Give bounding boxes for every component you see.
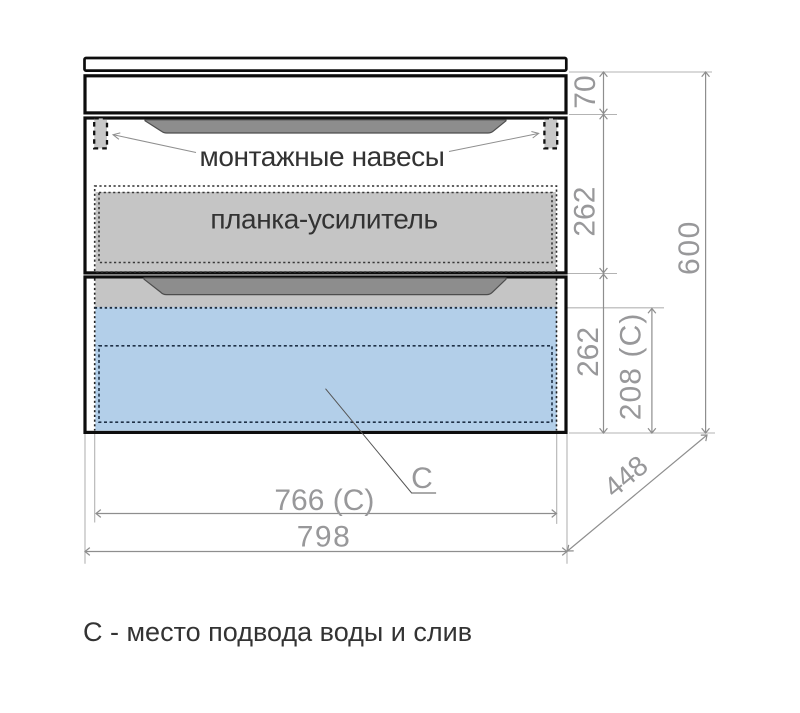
svg-text:планка-усилитель: планка-усилитель [210, 204, 437, 235]
svg-text:С: С [411, 462, 433, 495]
svg-text:С - место подвода воды и слив: С - место подвода воды и слив [83, 617, 472, 647]
svg-text:798: 798 [297, 521, 352, 554]
svg-text:766 (С): 766 (С) [274, 484, 374, 517]
svg-text:262: 262 [572, 327, 605, 377]
svg-text:208 (С): 208 (С) [615, 313, 648, 421]
svg-text:монтажные навесы: монтажные навесы [200, 141, 445, 172]
svg-text:600: 600 [673, 220, 706, 275]
svg-text:70: 70 [569, 75, 602, 108]
svg-text:262: 262 [568, 187, 601, 237]
